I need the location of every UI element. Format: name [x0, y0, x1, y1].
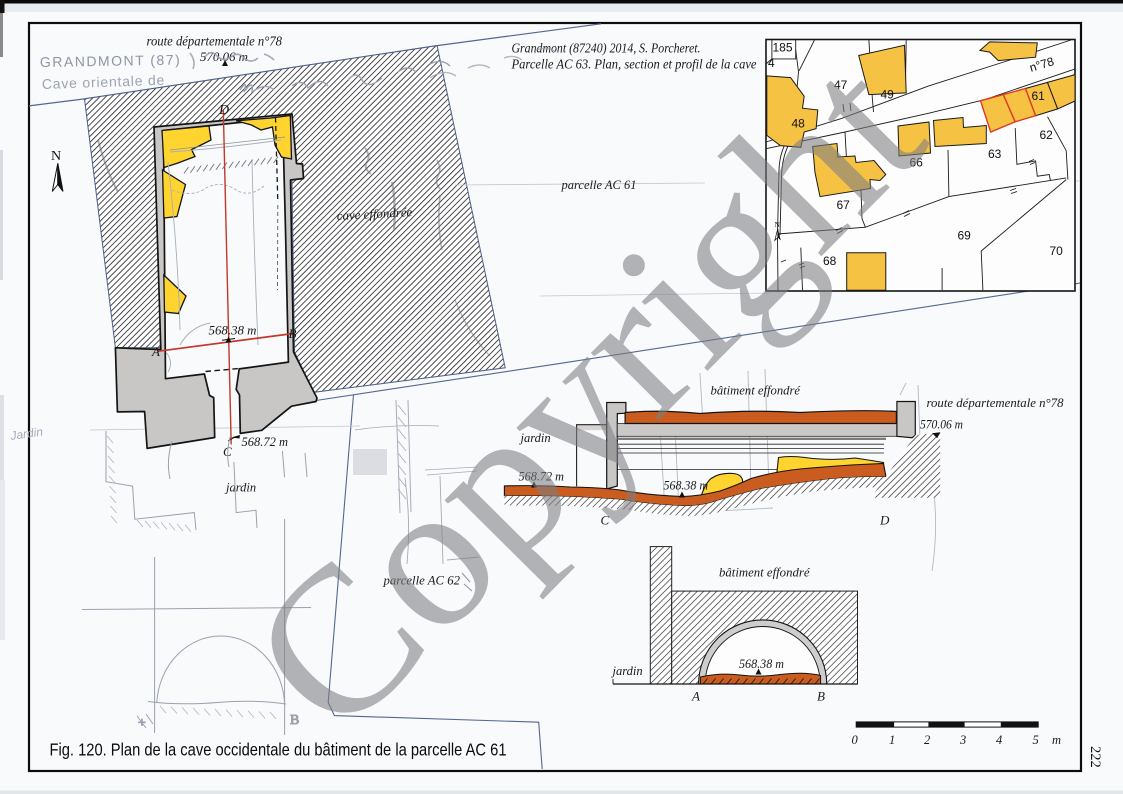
svg-text:4: 4 [996, 733, 1002, 747]
svg-text:568.38 m: 568.38 m [739, 657, 784, 671]
svg-text:Grandmont (87240) 2014, S. Por: Grandmont (87240) 2014, S. Porcheret. [512, 41, 701, 56]
svg-text:jardin: jardin [611, 664, 643, 678]
svg-text:N: N [51, 149, 61, 164]
svg-text:route départementale n°78: route départementale n°78 [927, 395, 1064, 410]
svg-text:B: B [289, 326, 297, 341]
svg-text:B: B [817, 689, 825, 704]
svg-text:A: A [151, 344, 160, 359]
svg-text:222: 222 [1087, 746, 1103, 768]
svg-text:jardin: jardin [224, 481, 256, 495]
svg-text:1: 1 [889, 733, 895, 747]
svg-text:A: A [691, 689, 700, 704]
svg-text:3: 3 [959, 733, 966, 747]
svg-text:568.38 m: 568.38 m [209, 324, 257, 338]
svg-text:route départementale n°78: route départementale n°78 [147, 34, 283, 49]
svg-text:570.06 m: 570.06 m [200, 49, 248, 64]
svg-text:2: 2 [924, 733, 930, 747]
svg-text:Fig. 120. Plan de la cave occi: Fig. 120. Plan de la cave occidentale du… [50, 740, 507, 760]
svg-text:B: B [290, 713, 299, 728]
svg-text:D: D [879, 513, 890, 528]
svg-text:63: 63 [988, 147, 1002, 161]
svg-text:568.72 m: 568.72 m [242, 435, 289, 449]
svg-text:parcelle AC 61: parcelle AC 61 [561, 178, 637, 192]
svg-text:69: 69 [958, 229, 972, 243]
svg-text:m: m [1052, 733, 1061, 747]
svg-text:570.06 m: 570.06 m [920, 418, 963, 432]
svg-text:D: D [218, 103, 229, 118]
svg-text:bâtiment effondré: bâtiment effondré [719, 566, 810, 580]
svg-text:568.38 m: 568.38 m [664, 479, 709, 493]
svg-text:0: 0 [852, 733, 859, 747]
svg-text:61: 61 [1032, 89, 1046, 103]
svg-text:5: 5 [1033, 733, 1039, 747]
svg-text:GRANDMONT (87): GRANDMONT (87) [40, 52, 182, 70]
svg-text:62: 62 [1040, 128, 1054, 142]
svg-text:70: 70 [1050, 244, 1064, 258]
svg-text:Parcelle AC 63. Plan, section: Parcelle AC 63. Plan, section et profil … [511, 57, 757, 72]
